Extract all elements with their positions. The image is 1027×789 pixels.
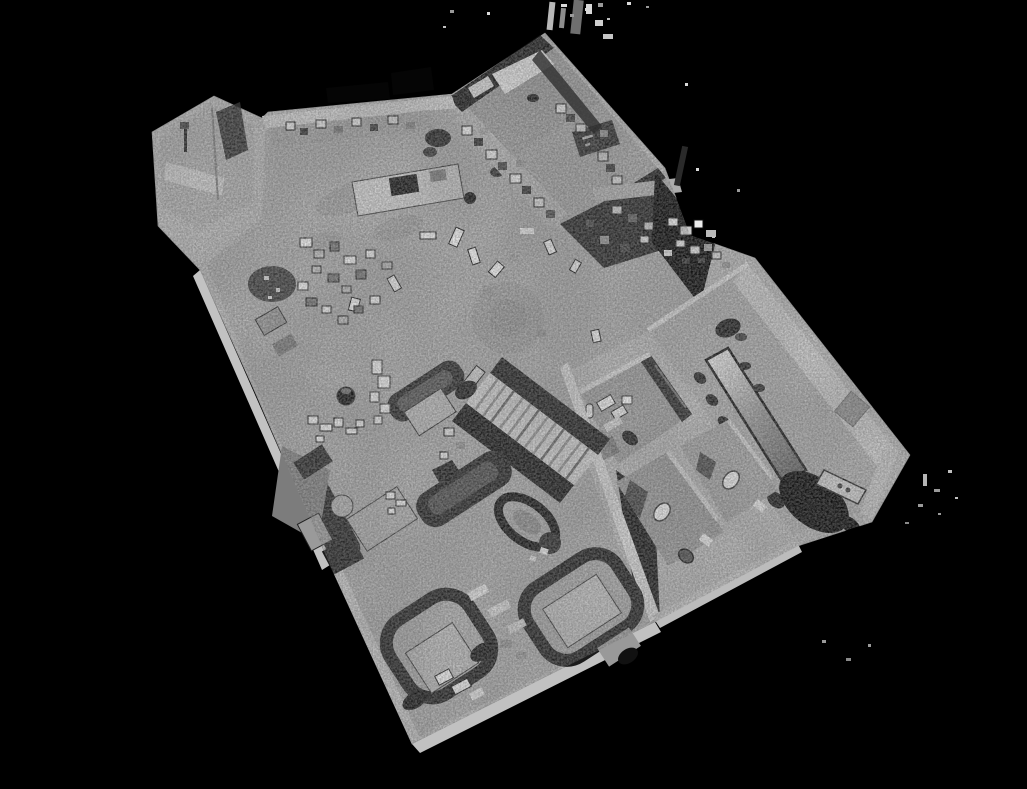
debris-fragment [603,34,613,39]
speck [923,474,927,486]
speck [934,489,940,492]
speck [561,4,567,7]
speck [570,14,574,17]
speck [846,658,851,661]
speck [948,470,952,473]
debris-fragment [547,2,556,30]
debris-fragment [674,146,688,186]
scan-viewport[interactable] [0,0,1027,789]
debris-fragment [570,0,583,34]
window-opening [391,67,434,95]
window-opening [326,82,390,103]
debris-fragment [595,20,603,26]
speck [443,26,446,28]
speck [627,2,631,5]
speck [598,3,603,7]
speck [607,18,610,20]
speck [712,236,715,238]
speck [868,644,871,647]
grain-mottle [0,0,1027,789]
speck [450,10,454,13]
speck [487,12,490,15]
speck [585,8,588,11]
speck [918,504,923,507]
speck [905,522,909,524]
scan-canvas[interactable] [0,0,1027,789]
speck [685,83,688,86]
speck [955,497,958,499]
debris-fragment [559,8,566,28]
speck [646,6,649,8]
speck [737,189,740,192]
white-clutter [706,230,716,237]
speck [696,168,699,171]
speck [938,513,941,515]
speck [822,640,826,643]
white-clutter [694,220,703,228]
